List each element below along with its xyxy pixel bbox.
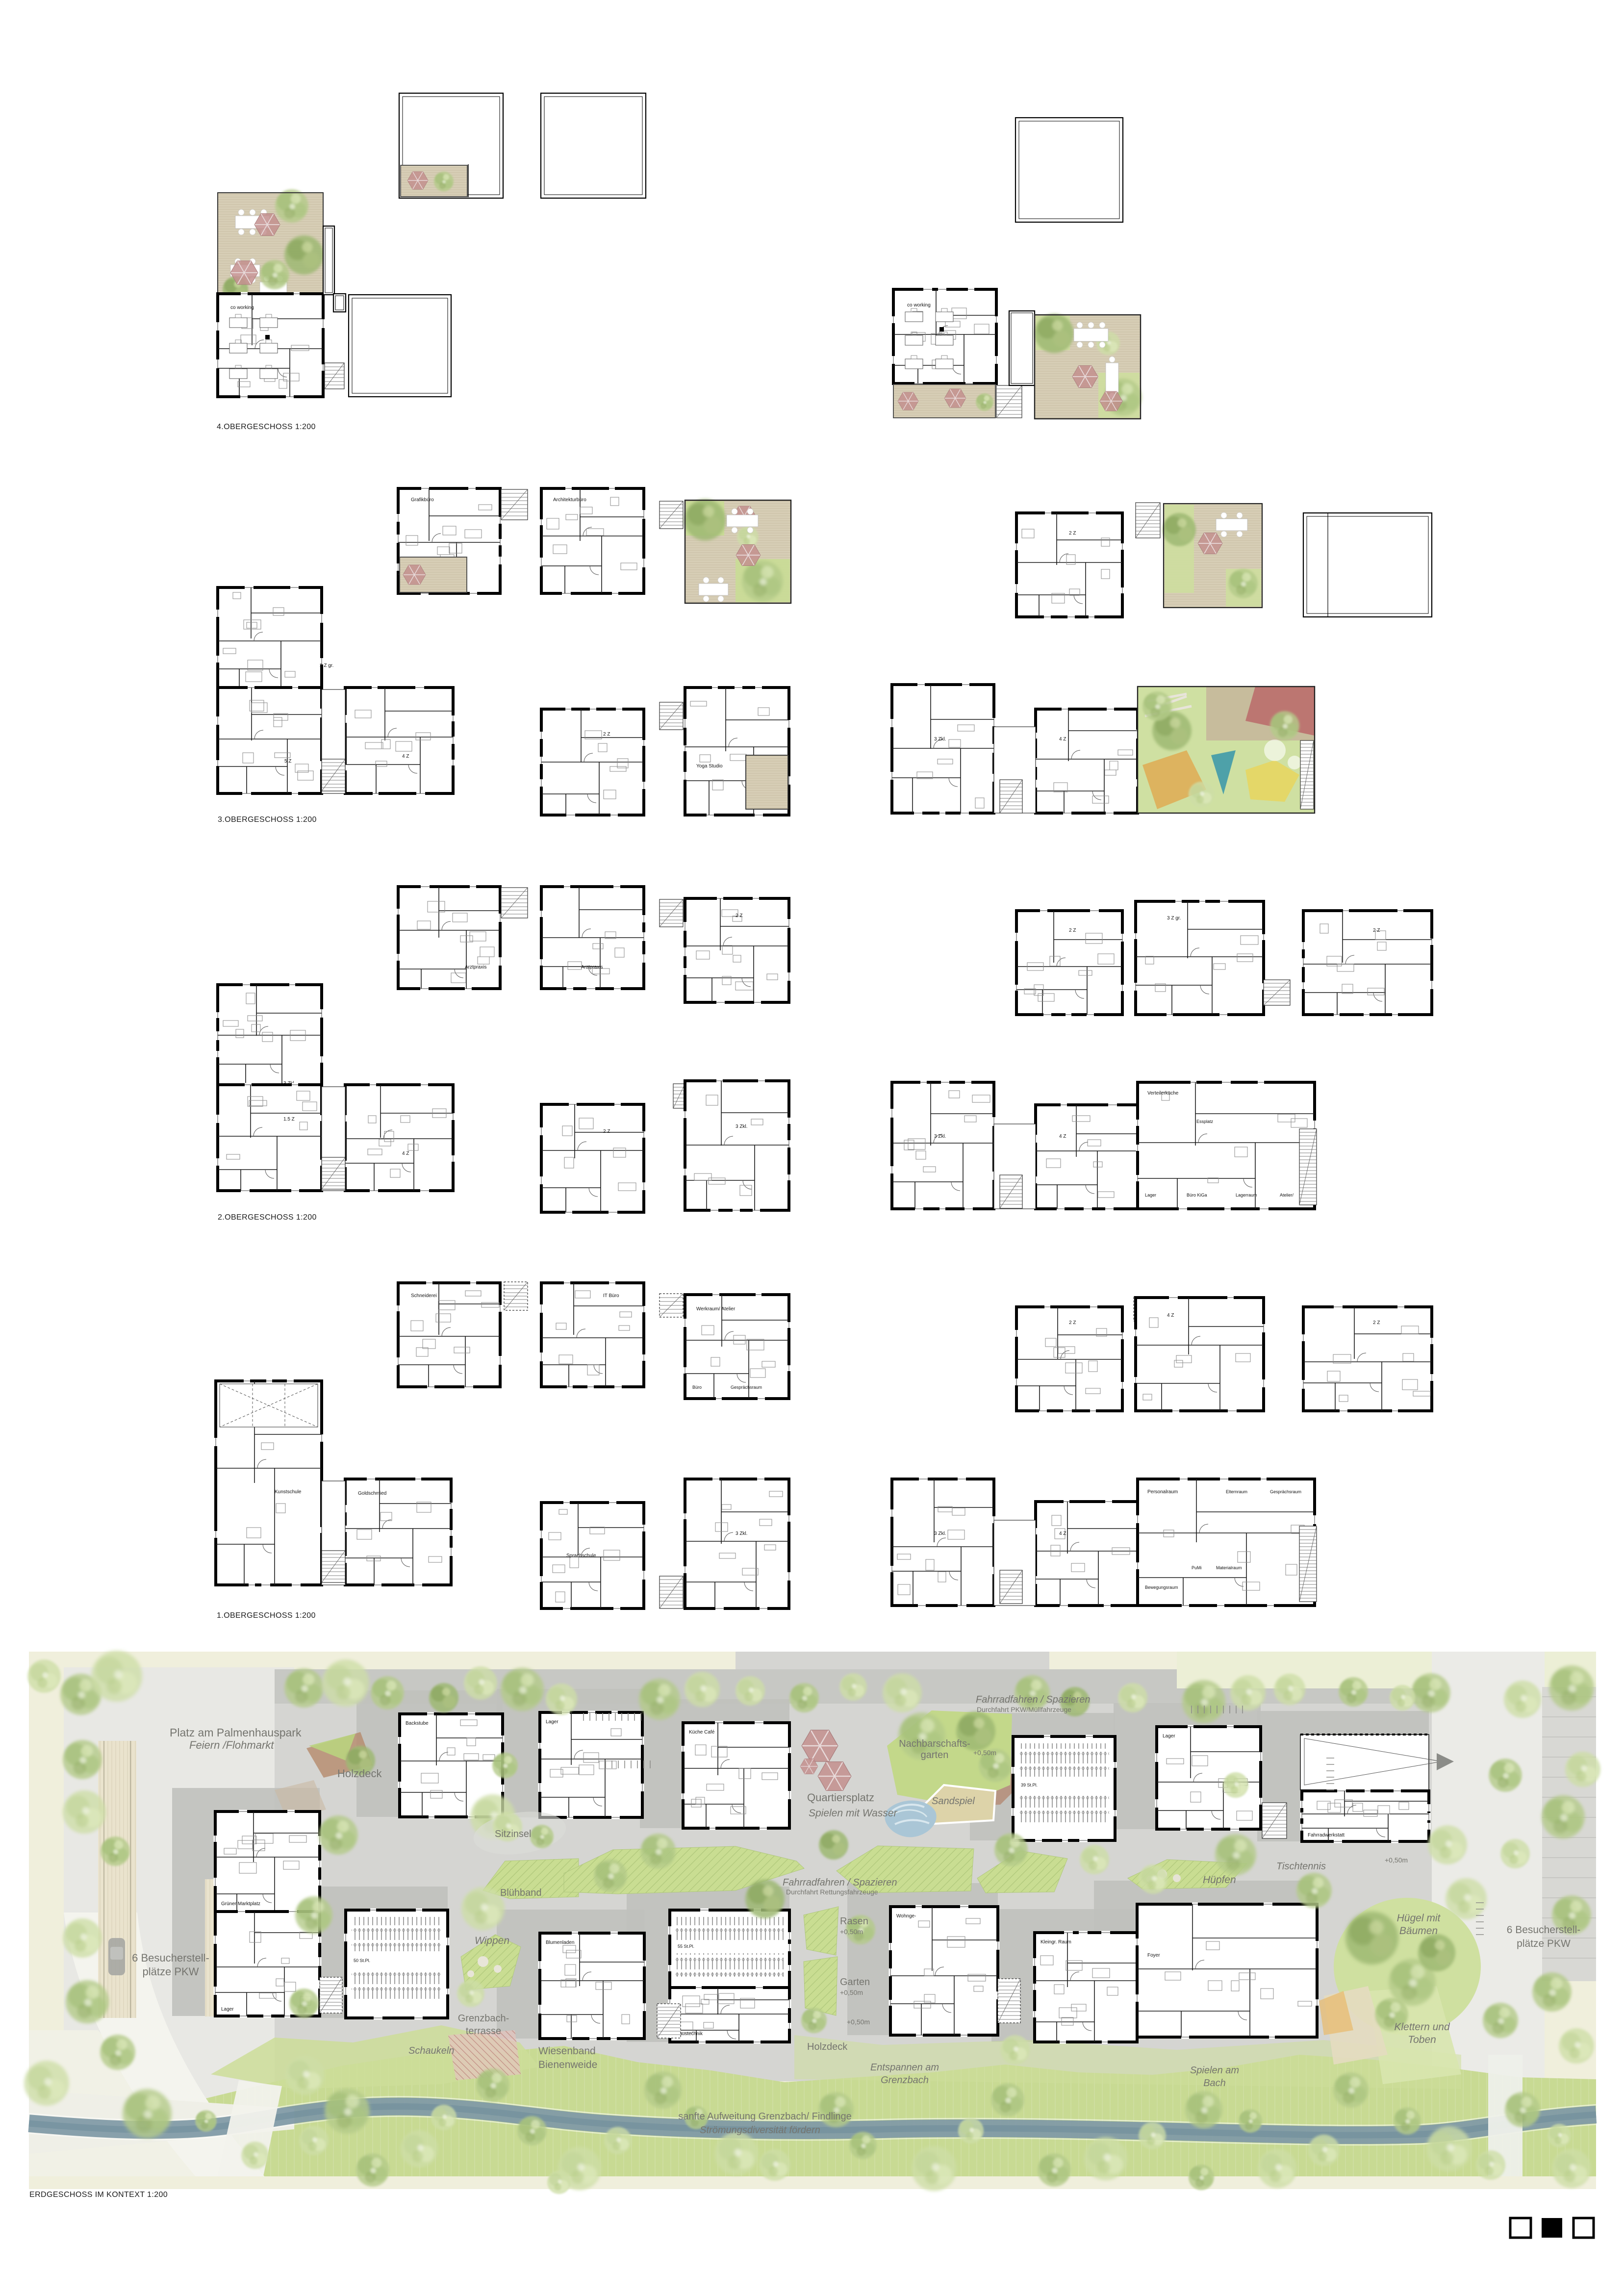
svg-text:39 St.Pl.: 39 St.Pl. (1021, 1783, 1038, 1787)
svg-text:Spielen am: Spielen am (1190, 2065, 1239, 2076)
svg-text:2 Z: 2 Z (603, 1129, 610, 1134)
svg-text:plätze PKW: plätze PKW (1517, 1938, 1571, 1949)
svg-text:Essplatz: Essplatz (1196, 1119, 1214, 1124)
svg-text:Schneiderei: Schneiderei (411, 1293, 437, 1299)
svg-text:2 Z: 2 Z (1069, 1320, 1076, 1326)
svg-text:Büro: Büro (692, 1385, 702, 1390)
svg-text:Toben: Toben (1408, 2034, 1436, 2045)
svg-text:Bewegungsraum: Bewegungsraum (1145, 1585, 1178, 1590)
svg-text:co working: co working (230, 305, 254, 310)
svg-text:4 Z: 4 Z (1059, 1531, 1066, 1536)
svg-text:4 Z: 4 Z (1167, 1313, 1174, 1318)
svg-text:Rasen: Rasen (840, 1916, 868, 1927)
svg-text:Kleingr. Raum: Kleingr. Raum (1040, 1939, 1071, 1945)
svg-text:Gesprächsraum: Gesprächsraum (731, 1385, 762, 1390)
svg-text:2 Z: 2 Z (1069, 531, 1076, 536)
svg-text:6 Besucherstell-: 6 Besucherstell- (1507, 1924, 1581, 1936)
svg-text:Lager: Lager (221, 2007, 234, 2012)
svg-text:2 Z: 2 Z (1373, 1320, 1380, 1326)
svg-text:garten: garten (921, 1750, 949, 1760)
svg-text:Hüpfen: Hüpfen (1203, 1874, 1236, 1886)
svg-text:+0,50m: +0,50m (1385, 1856, 1408, 1864)
svg-text:Lagerraum: Lagerraum (1236, 1193, 1257, 1198)
svg-text:Bienenweide: Bienenweide (538, 2059, 597, 2070)
svg-text:+0,50m: +0,50m (840, 1989, 863, 1996)
svg-text:Backstube: Backstube (406, 1721, 429, 1726)
svg-text:Holzdeck: Holzdeck (807, 2041, 848, 2052)
svg-text:Wiesenband: Wiesenband (538, 2045, 596, 2057)
svg-text:Personalraum: Personalraum (1147, 1489, 1178, 1495)
svg-text:+0,50m: +0,50m (847, 2018, 870, 2026)
svg-text:Büro KiGa: Büro KiGa (1187, 1193, 1207, 1198)
svg-text:Grenzbach: Grenzbach (881, 2075, 929, 2086)
svg-text:4 Z: 4 Z (402, 754, 409, 759)
svg-text:Klettern und: Klettern und (1394, 2021, 1450, 2033)
svg-text:Garten: Garten (840, 1977, 870, 1988)
svg-text:2 Z: 2 Z (1373, 928, 1380, 933)
svg-text:Atelier/: Atelier/ (1280, 1193, 1294, 1198)
svg-text:Verteilerküche: Verteilerküche (1147, 1091, 1179, 1096)
svg-text:5 Z: 5 Z (284, 759, 291, 764)
svg-text:co working: co working (907, 303, 931, 308)
svg-text:+0,50m: +0,50m (973, 1749, 996, 1757)
svg-text:55 St.Pl.: 55 St.Pl. (678, 1944, 694, 1949)
svg-text:Holzdeck: Holzdeck (337, 1767, 382, 1780)
svg-text:Bach: Bach (1203, 2078, 1226, 2089)
svg-text:Lager: Lager (546, 1719, 558, 1725)
svg-text:Werkraum/ Atelier: Werkraum/ Atelier (696, 1306, 736, 1312)
svg-text:IT Büro: IT Büro (603, 1293, 619, 1299)
svg-text:Bäumen: Bäumen (1399, 1925, 1438, 1937)
svg-text:Blühband: Blühband (500, 1888, 542, 1898)
svg-text:ERDGESCHOSS IM KONTEXT 1:200: ERDGESCHOSS IM KONTEXT 1:200 (29, 2191, 168, 2199)
svg-text:terrasse: terrasse (466, 2026, 501, 2037)
svg-text:sanfte Aufweitung Grenzbach/ F: sanfte Aufweitung Grenzbach/ Findlinge (678, 2111, 852, 2122)
svg-text:3 Zkl.: 3 Zkl. (934, 737, 946, 742)
svg-text:1.OBERGESCHOSS 1:200: 1.OBERGESCHOSS 1:200 (217, 1611, 316, 1620)
svg-text:Gesprächsraum: Gesprächsraum (1270, 1489, 1301, 1494)
svg-text:Feiern /Flohmarkt: Feiern /Flohmarkt (189, 1739, 274, 1751)
svg-text:2 Z: 2 Z (736, 913, 742, 918)
svg-text:3 Z gr.: 3 Z gr. (1167, 916, 1181, 921)
svg-text:Nachbarschafts-: Nachbarschafts- (899, 1738, 970, 1749)
svg-text:Arztpraxis: Arztpraxis (465, 965, 486, 970)
svg-text:Arztpraxis: Arztpraxis (581, 965, 603, 970)
svg-text:4 Z: 4 Z (402, 1151, 409, 1156)
svg-text:Lager: Lager (1163, 1734, 1175, 1739)
svg-text:3.OBERGESCHOSS 1:200: 3.OBERGESCHOSS 1:200 (218, 816, 317, 824)
svg-text:Sprachschule: Sprachschule (566, 1553, 596, 1558)
svg-text:3 Zkl.: 3 Zkl. (934, 1134, 946, 1139)
svg-text:Elternraum: Elternraum (1226, 1489, 1247, 1494)
svg-text:Foyer: Foyer (1147, 1953, 1160, 1958)
svg-text:3 Zkl.: 3 Zkl. (934, 1531, 946, 1536)
svg-text:+0,50m: +0,50m (840, 1928, 863, 1936)
svg-text:2 Z: 2 Z (603, 732, 610, 737)
svg-text:Strömungsdiversität fördern: Strömungsdiversität fördern (700, 2125, 820, 2136)
svg-text:Grenzbach-: Grenzbach- (458, 2013, 509, 2024)
svg-text:2 Z: 2 Z (1069, 928, 1076, 933)
svg-text:Durchfahrt Rettungsfahrzeuge: Durchfahrt Rettungsfahrzeuge (786, 1888, 878, 1896)
svg-text:Küche Café: Küche Café (689, 1730, 715, 1735)
svg-text:Tischtennis: Tischtennis (1276, 1861, 1326, 1872)
svg-text:4 Z: 4 Z (1059, 1134, 1066, 1139)
svg-text:50 St.Pl.: 50 St.Pl. (354, 1958, 370, 1963)
svg-text:Wohnge-: Wohnge- (896, 1913, 916, 1919)
svg-text:Lager: Lager (1145, 1193, 1156, 1198)
svg-text:Durchfahrt PKW/Müllfahrzeuge: Durchfahrt PKW/Müllfahrzeuge (977, 1706, 1071, 1713)
svg-text:Wippen: Wippen (475, 1935, 509, 1946)
svg-text:Fahrradwerkstatt: Fahrradwerkstatt (1308, 1833, 1345, 1838)
svg-text:4 Z: 4 Z (1059, 737, 1066, 742)
svg-text:3 Zkl.: 3 Zkl. (736, 1124, 747, 1129)
svg-text:Architekturbüro: Architekturbüro (553, 497, 586, 503)
svg-text:Materialraum: Materialraum (1216, 1565, 1242, 1570)
svg-text:4.OBERGESCHOSS 1:200: 4.OBERGESCHOSS 1:200 (217, 423, 316, 431)
svg-text:Quartiersplatz: Quartiersplatz (807, 1791, 874, 1804)
svg-text:Yoga Studio: Yoga Studio (696, 764, 723, 769)
svg-text:Kunstschule: Kunstschule (275, 1489, 302, 1495)
svg-text:Schaukeln: Schaukeln (408, 2045, 454, 2056)
svg-text:plätze PKW: plätze PKW (143, 1965, 199, 1978)
svg-text:6 Besucherstell-: 6 Besucherstell- (132, 1952, 209, 1964)
svg-text:Blumenladen: Blumenladen (546, 1940, 574, 1945)
svg-text:Entspannen am: Entspannen am (870, 2062, 939, 2073)
svg-text:Sandspiel: Sandspiel (932, 1796, 975, 1807)
svg-text:Grüner Marktplatz: Grüner Marktplatz (221, 1901, 260, 1907)
svg-text:Sitzinsel: Sitzinsel (495, 1829, 531, 1839)
svg-text:3 Zkl.: 3 Zkl. (736, 1531, 747, 1536)
svg-text:Fahrradfahren / Spazieren: Fahrradfahren / Spazieren (783, 1877, 897, 1888)
svg-text:PuMi: PuMi (1192, 1565, 1202, 1570)
svg-text:Goldschmied: Goldschmied (358, 1491, 386, 1496)
svg-text:Spielen mit Wasser: Spielen mit Wasser (809, 1808, 898, 1819)
svg-text:3 Z gr.: 3 Z gr. (320, 663, 333, 668)
svg-text:1.5 Z: 1.5 Z (283, 1117, 295, 1122)
svg-text:Platz am Palmenhauspark: Platz am Palmenhauspark (170, 1726, 302, 1739)
svg-text:Fahrradfahren / Spazieren: Fahrradfahren / Spazieren (976, 1694, 1090, 1705)
svg-text:Grafikbüro: Grafikbüro (411, 497, 434, 503)
svg-text:Hügel mit: Hügel mit (1397, 1913, 1441, 1924)
svg-text:2.OBERGESCHOSS 1:200: 2.OBERGESCHOSS 1:200 (218, 1213, 317, 1222)
